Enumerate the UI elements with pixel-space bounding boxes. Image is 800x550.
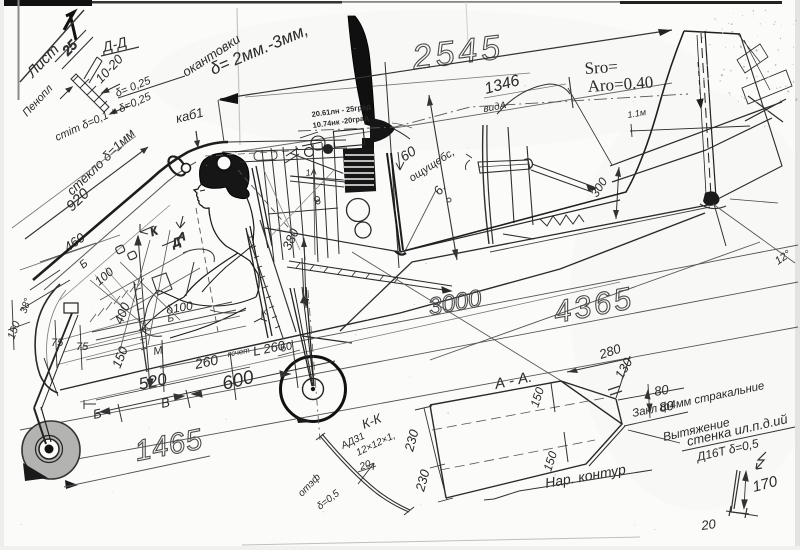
svg-text:75: 75 xyxy=(51,337,64,349)
svg-text:20: 20 xyxy=(699,516,717,533)
svg-text:75: 75 xyxy=(76,341,89,353)
svg-text:1А: 1А xyxy=(305,167,317,178)
svg-text:А: А xyxy=(177,231,185,243)
